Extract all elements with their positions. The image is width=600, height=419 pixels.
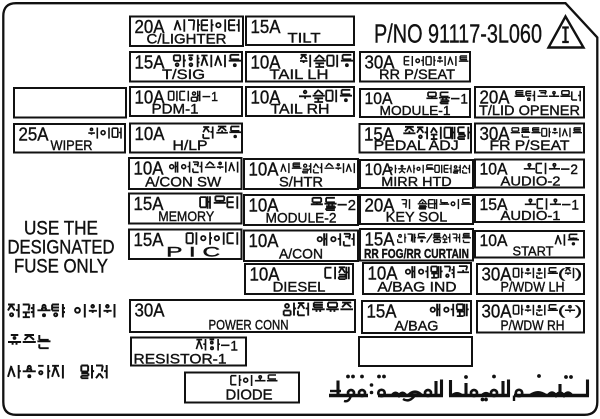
svg-text:15A: 15A xyxy=(367,301,398,322)
svg-text:10A: 10A xyxy=(249,230,280,251)
svg-text:RESISTOR-1: RESISTOR-1 xyxy=(134,351,227,367)
svg-text:TAIL LH: TAIL LH xyxy=(270,66,329,82)
svg-text:MEMORY: MEMORY xyxy=(158,208,215,224)
svg-text:15A: 15A xyxy=(251,16,282,37)
svg-text:T/LID OPENER: T/LID OPENER xyxy=(479,102,580,118)
svg-text:): ) xyxy=(575,267,582,281)
svg-text:PDM-1: PDM-1 xyxy=(152,101,199,117)
svg-text:AUDIO-2: AUDIO-2 xyxy=(501,174,561,189)
svg-text:S/HTR: S/HTR xyxy=(279,174,323,190)
svg-text:1: 1 xyxy=(230,338,238,353)
svg-text:T/SIG: T/SIG xyxy=(162,66,205,82)
svg-text:A/CON: A/CON xyxy=(279,246,323,262)
svg-text:A/BAG IND: A/BAG IND xyxy=(377,279,456,295)
svg-text:MODULE-1: MODULE-1 xyxy=(380,103,451,118)
svg-text:25A: 25A xyxy=(19,124,50,145)
svg-text:TILT: TILT xyxy=(288,30,322,46)
svg-text:PEDAL ADJ: PEDAL ADJ xyxy=(374,137,459,153)
svg-text:START: START xyxy=(513,244,554,259)
svg-text:RR FOG/RR CURTAIN: RR FOG/RR CURTAIN xyxy=(364,247,469,261)
svg-text:10A: 10A xyxy=(480,231,509,250)
svg-text:15A: 15A xyxy=(134,229,165,250)
svg-text:DESIGNATED: DESIGNATED xyxy=(8,238,115,259)
svg-text:FR P/SEAT: FR P/SEAT xyxy=(490,137,570,153)
svg-text:DIESEL: DIESEL xyxy=(273,279,326,295)
svg-text:A/CON SW: A/CON SW xyxy=(145,174,222,190)
svg-text:DIODE: DIODE xyxy=(226,388,273,404)
svg-text:C/LIGHTER: C/LIGHTER xyxy=(147,31,227,47)
svg-text:10A: 10A xyxy=(249,159,280,180)
svg-text:AUDIO-1: AUDIO-1 xyxy=(501,208,561,223)
svg-text:RR P/SEAT: RR P/SEAT xyxy=(379,66,455,82)
svg-text:H/LP: H/LP xyxy=(173,137,208,153)
svg-text:P I C: P I C xyxy=(166,244,220,260)
svg-text:KEY SOL: KEY SOL xyxy=(386,209,448,225)
svg-text:15A: 15A xyxy=(135,52,166,73)
svg-text:2: 2 xyxy=(570,162,578,177)
svg-text:P/WDW RH: P/WDW RH xyxy=(501,317,565,333)
svg-text:P/WDW LH: P/WDW LH xyxy=(501,279,565,295)
svg-text:1: 1 xyxy=(460,92,468,107)
svg-text:10A: 10A xyxy=(135,123,166,144)
svg-text:1: 1 xyxy=(211,90,218,104)
svg-text:): ) xyxy=(575,304,582,318)
svg-text:FUSE ONLY: FUSE ONLY xyxy=(14,257,108,278)
svg-text:P/NO 91117-3L060: P/NO 91117-3L060 xyxy=(374,19,542,49)
svg-text:TAIL RH: TAIL RH xyxy=(271,101,330,117)
svg-text:WIPER: WIPER xyxy=(51,137,93,153)
svg-text:30A: 30A xyxy=(135,300,166,321)
svg-text:1: 1 xyxy=(571,198,579,213)
svg-text:MIRR HTD: MIRR HTD xyxy=(381,174,451,189)
svg-text:2: 2 xyxy=(348,197,356,214)
svg-text:USE THE: USE THE xyxy=(24,219,98,240)
svg-text:MODULE-2: MODULE-2 xyxy=(266,210,337,226)
svg-text:POWER CONN: POWER CONN xyxy=(209,317,289,333)
svg-text:A/BAG: A/BAG xyxy=(395,318,439,334)
